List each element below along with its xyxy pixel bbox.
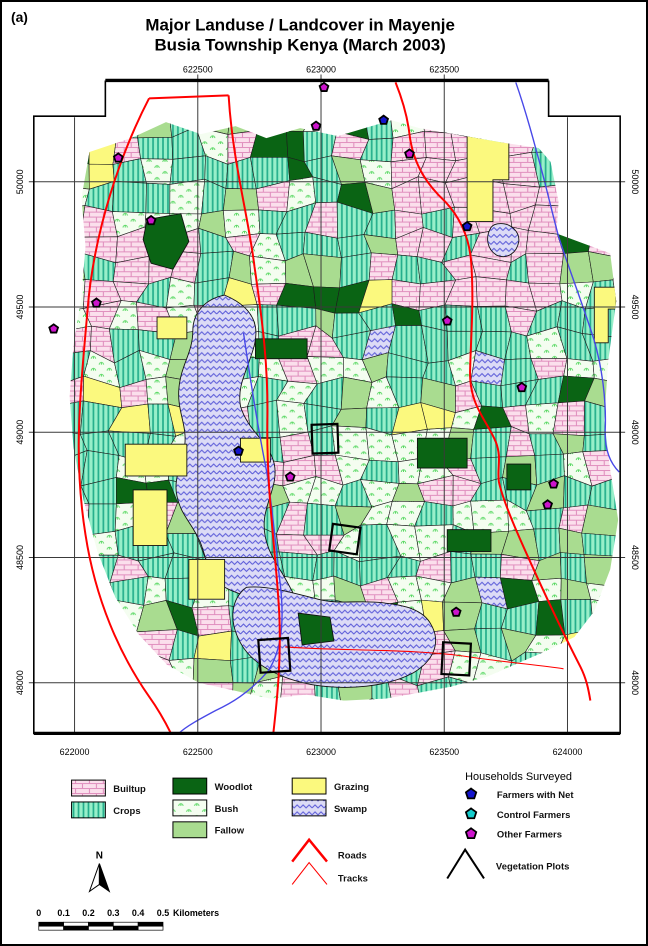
parcel-crops [112,181,146,213]
map-title-line1: Major Landuse / Landcover in Mayenje [145,16,454,35]
grazing-patch [133,490,167,546]
axis-label-right: 49000 [630,420,640,445]
scale-bar-segment [138,922,163,926]
legend-swatch-bush [173,800,207,816]
figure-label: (a) [11,9,28,25]
legend-swatch-woodlot [173,778,207,794]
parcel-builtup [476,277,506,307]
legend-label-woodlot: Woodlot [215,782,253,793]
parcel-woodlot [286,131,304,162]
scale-bar-tick-label: 0.5 [157,908,169,918]
parcel-bush [170,179,205,214]
legend-swatch-builtup [72,780,106,796]
axis-label-right: 48500 [630,545,640,570]
axis-label-right: 49500 [630,295,640,320]
axis-label-left: 48500 [15,545,25,570]
legend-label-swamp: Swamp [334,804,367,815]
scale-bar-segment [39,922,64,926]
grazing-patch [241,438,271,462]
scale-bar-segment [113,922,138,926]
axis-label-right: 48000 [630,670,640,695]
marker-other-farmer [517,383,526,391]
parcel-bush [526,403,559,434]
scale-bar-segment [113,926,138,930]
parcel-builtup [526,254,564,284]
map-figure: (a) Major Landuse / Landcover in Mayenje… [0,0,648,946]
woodlot-patch [507,464,531,490]
scale-bar-tick-label: 0.2 [82,908,94,918]
legend-household-symbols [466,789,476,839]
axis-label-top: 622500 [183,64,213,74]
legend-label-grazing: Grazing [334,782,369,793]
parcel-crops [146,183,170,213]
legend-label-farmers-net: Farmers with Net [497,790,574,801]
legend-label-builtup: Builtup [113,784,146,795]
marker-other-farmer [147,216,156,224]
scale-bar-tick-label: 0 [36,908,41,918]
legend-label-fallow: Fallow [215,826,245,837]
axis-label-bottom: 622000 [60,747,90,757]
scale-bar-segment [64,922,89,926]
legend-swatch-swamp [292,800,326,816]
scale-bar-segment [88,926,113,930]
legend-swatch-fallow [173,822,207,838]
scale-bar-segment [64,926,89,930]
marker-other-farmer [543,500,552,508]
grazing-patch [189,559,225,599]
marker-other-farmer [452,608,461,616]
parcel-bush [146,377,168,404]
parcel-builtup [424,131,455,161]
marker-other-farmer [312,122,321,130]
legend-households-header: Households Surveyed [465,771,572,783]
legend-label-bush: Bush [215,804,239,815]
legend-swatch-grazing [292,778,326,794]
marker-other-farmer [114,153,123,161]
parcel-bush [564,359,595,379]
woodlot-patch [298,613,334,645]
scale-bar-unit: Kilometers [173,908,219,918]
axis-label-left: 49000 [15,420,25,445]
legend-label-vegetation-plots: Vegetation Plots [496,862,569,873]
legend-label-tracks: Tracks [338,873,368,884]
legend-swatch-crops [72,802,106,818]
legend-label-control-farmers: Control Farmers [497,810,570,821]
axis-label-top: 623500 [429,64,459,74]
scale-bar-segment [138,926,163,930]
legend-label-roads: Roads [338,851,367,862]
parcel-bush [471,500,509,533]
map-title-line2: Busia Township Kenya (March 2003) [154,36,445,55]
woodlot-patch [417,438,467,468]
axis-label-left: 50000 [15,169,25,194]
swamp-patch [488,224,519,257]
parcel-crops [138,137,173,159]
scale-bar-tick-label: 0.4 [132,908,144,918]
axis-label-right: 50000 [630,169,640,194]
marker-net-farmer [234,447,243,455]
marker-net-farmer [463,222,472,230]
legend-label-crops: Crops [113,806,140,817]
grazing-patch [157,317,187,339]
grazing-patch [125,444,187,476]
marker-other-farmer [443,316,452,324]
axis-label-left: 48000 [15,670,25,695]
scale-bar-segment [88,922,113,926]
parcel-fallow [193,658,233,682]
north-arrow-label: N [96,851,103,862]
marker-net-farmer [379,116,388,124]
axis-label-bottom: 622500 [183,747,213,757]
parcel-bush [223,210,260,238]
axis-label-top: 623000 [306,64,336,74]
scale-bar-tick-label: 0.3 [107,908,119,918]
axis-label-left: 49500 [15,295,25,320]
marker-other-farmer [49,324,58,332]
axis-label-bottom: 623000 [306,747,336,757]
parcel-bush [166,277,194,308]
parcel-builtup [553,401,585,436]
marker-other-farmer [286,472,295,480]
scale-bar-tick-label: 0.1 [57,908,69,918]
marker-other-farmer [405,149,414,157]
axis-label-bottom: 623500 [429,747,459,757]
marker-other-farmer [92,298,101,306]
axis-label-bottom: 624000 [553,747,583,757]
marker-other-farmer [549,479,558,487]
scale-bar-segment [39,926,64,930]
woodlot-patch [447,530,491,552]
map-scene: (a) Major Landuse / Landcover in Mayenje… [2,2,646,944]
marker-other-farmer [320,83,329,91]
legend-label-other-farmers: Other Farmers [497,830,562,841]
